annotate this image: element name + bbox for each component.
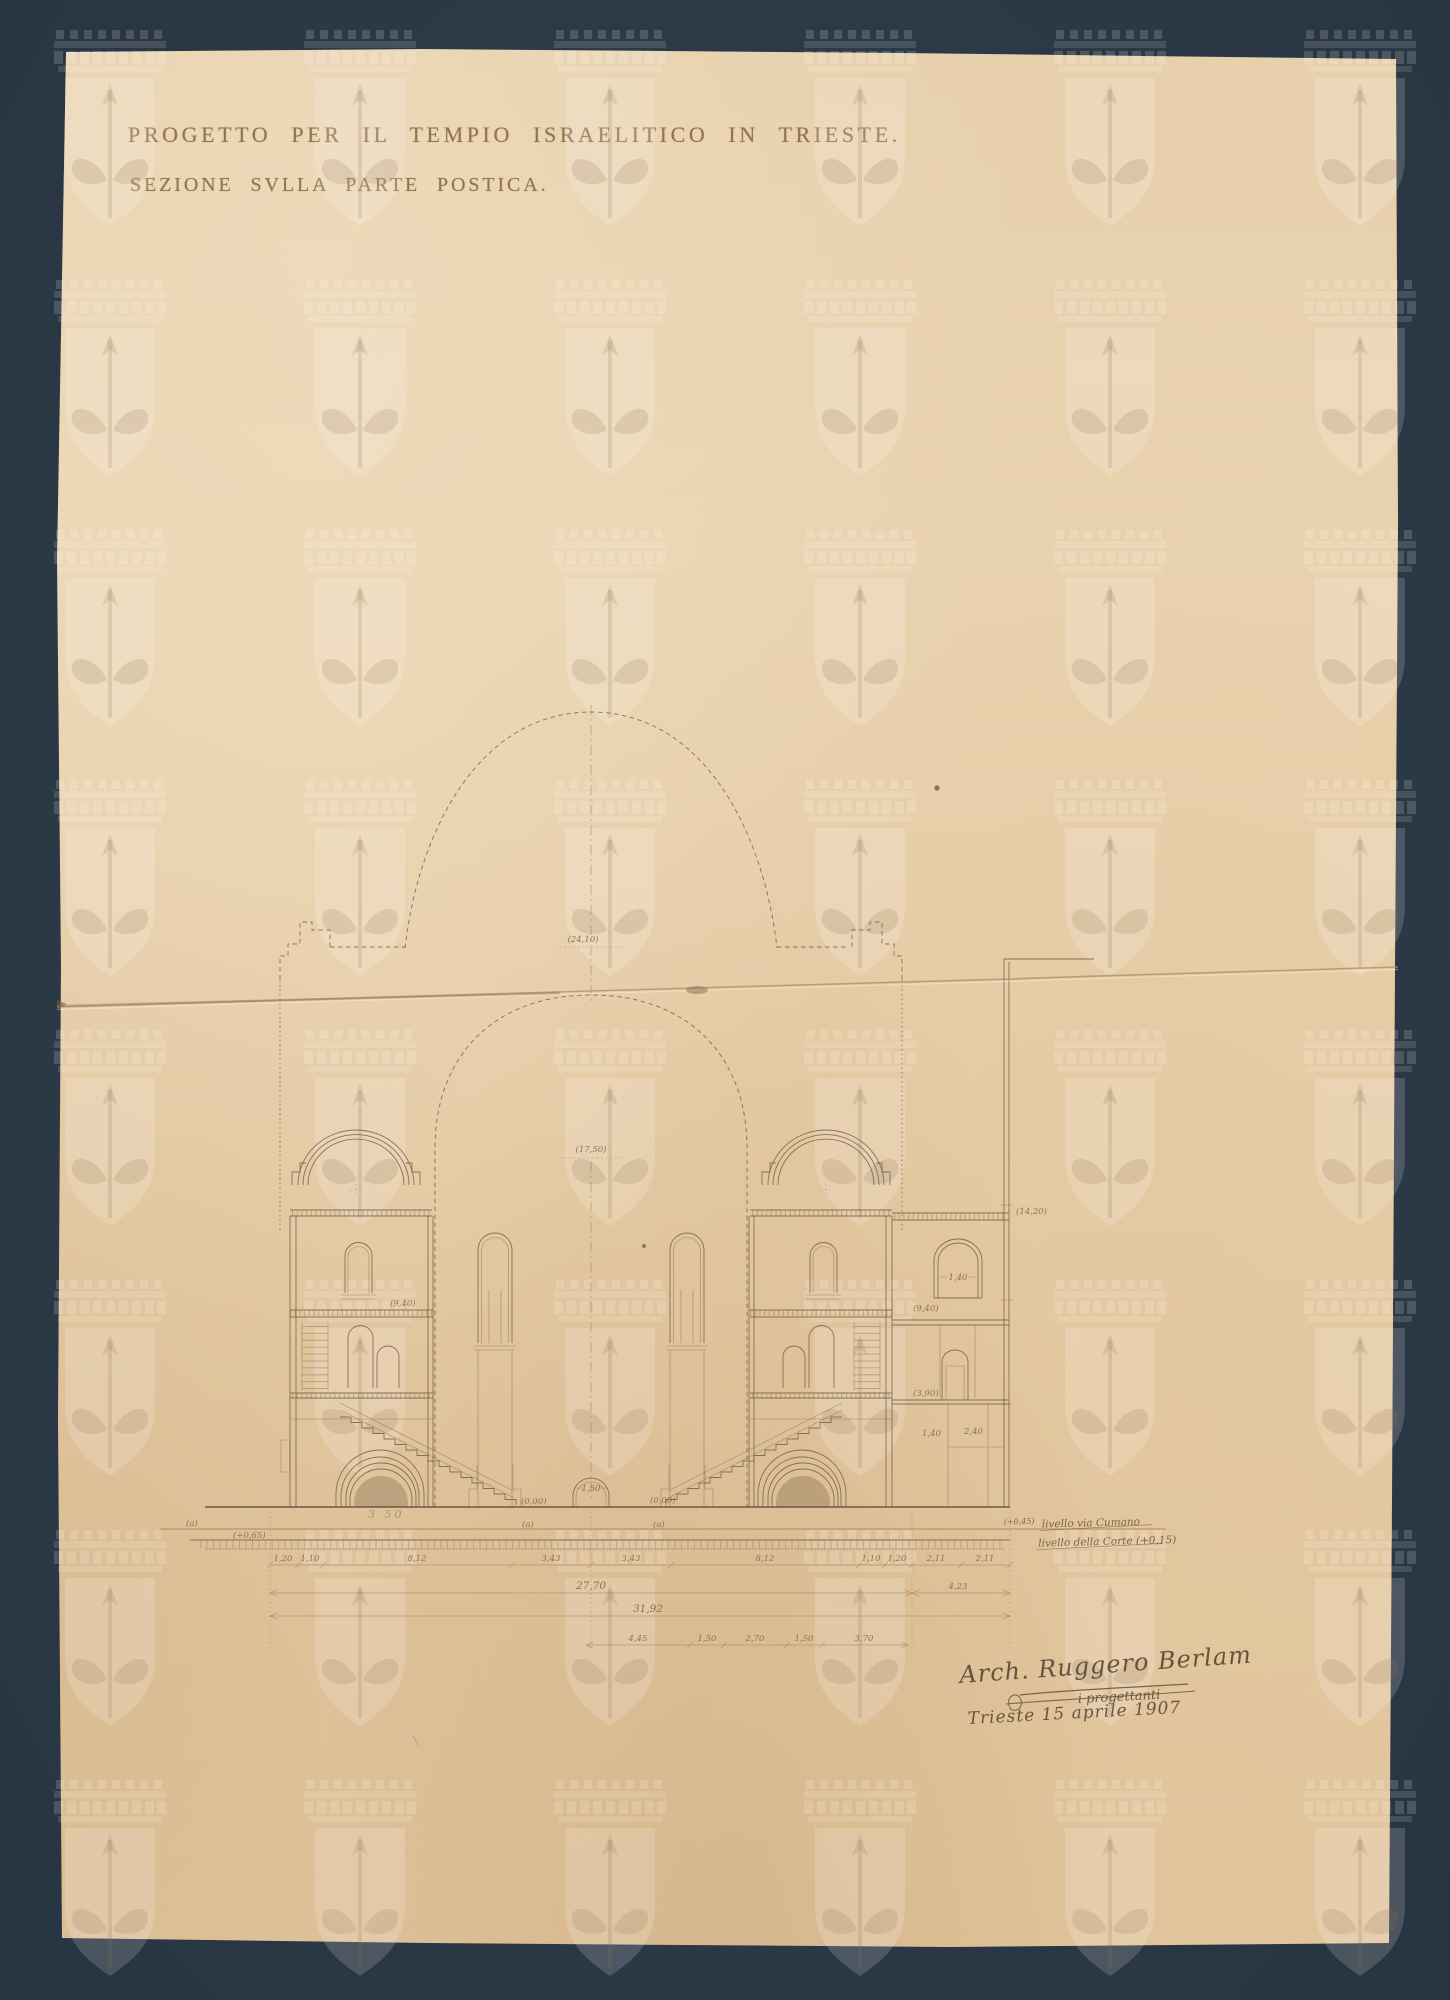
dim-r4-1: 4,45 — [628, 1634, 648, 1644]
annex-room-a: 1,40 — [922, 1429, 942, 1439]
dim-6: 8,12 — [756, 1554, 775, 1564]
scan-overlay: (24,10) (17,50) (14,20) (9,40) (9,40) (3… — [0, 0, 1450, 2000]
dim-r4-2: 1,50 — [698, 1634, 718, 1644]
dim-8: 1,20 — [888, 1554, 908, 1564]
scanned-drawing-scene: PROGETTO PER IL TEMPIO ISRAELITICO IN TR… — [0, 0, 1450, 2000]
street-level-note: livello via Cumano — [1042, 1516, 1141, 1531]
axis-label-c: (a) — [653, 1519, 665, 1530]
dim-annex-width: 4,23 — [948, 1582, 968, 1592]
arch-level-label: (17,50) — [576, 1144, 607, 1155]
dim-r4-3: 2,70 — [745, 1634, 766, 1644]
stair-level-right: (0,00) — [650, 1495, 676, 1506]
dim-1: 1,20 — [274, 1554, 294, 1564]
dim-total: 31,92 — [633, 1603, 663, 1615]
gallery-level-left: (9,40) — [390, 1298, 416, 1309]
dim-9: 2,11 — [926, 1554, 946, 1564]
dim-3: 8,12 — [408, 1554, 427, 1564]
dim-r4-4: 1,50 — [795, 1634, 815, 1644]
dim-5: 3,43 — [622, 1554, 641, 1564]
watermark-layer — [0, 0, 1450, 2000]
dim-total-main: 27,70 — [575, 1580, 606, 1592]
annex-sill-level: (3,90) — [913, 1388, 939, 1399]
street-level-value: (+0,45) — [1004, 1517, 1035, 1527]
dim-2: 1,10 — [301, 1554, 321, 1564]
axis-label-a: (a) — [186, 1518, 198, 1529]
dim-7: 1,10 — [862, 1554, 882, 1564]
axis-label-b: (a) — [522, 1519, 534, 1530]
pencil-note: 3 50 — [368, 1508, 405, 1521]
annex-roof-level-label: (14,20) — [1016, 1206, 1047, 1217]
terrain-level-label: (+0,65) — [233, 1530, 266, 1541]
annex-room-b: 2,40 — [963, 1427, 984, 1437]
gallery-level-annex: (9,40) — [913, 1303, 939, 1314]
dim-r4-5: 3,70 — [855, 1634, 875, 1644]
dim-10: 2,11 — [975, 1554, 995, 1564]
dome-level-label: (24,10) — [568, 934, 599, 945]
door-width-label: 1,50 — [582, 1484, 602, 1494]
annex-window-width: 1,40 — [949, 1273, 969, 1283]
ink-stain — [934, 785, 939, 790]
dim-4: 3,43 — [542, 1554, 561, 1564]
stair-level-left: (0,00) — [521, 1496, 547, 1507]
